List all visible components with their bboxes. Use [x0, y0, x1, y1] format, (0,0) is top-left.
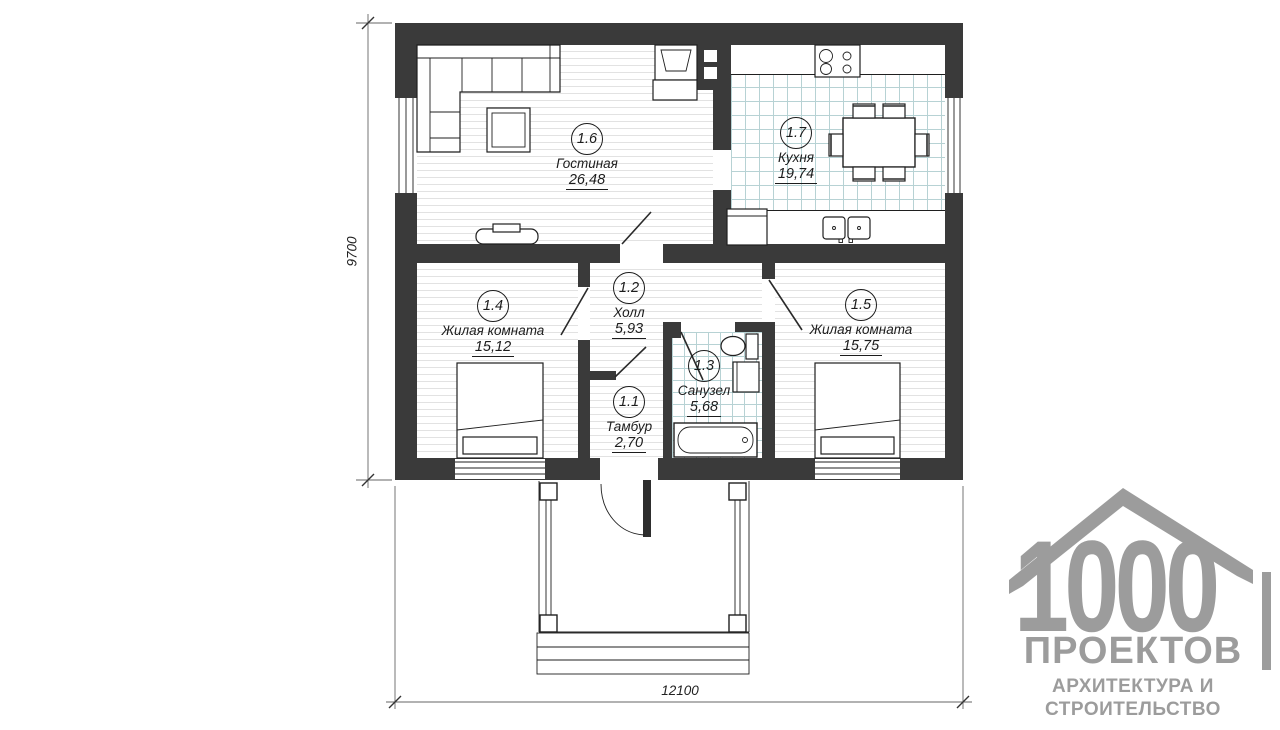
room-label-bedroom1: 1.4 Жилая комната 15,12 [423, 290, 563, 357]
floor-plan-sheet: 1.6 Гостиная 26,48 1.7 Кухня 19,74 1.4 Ж… [0, 0, 1280, 730]
room-area-bedroom1: 15,12 [472, 339, 514, 357]
room-number-living: 1.6 [571, 123, 603, 155]
room-label-bedroom2: 1.5 Жилая комната 15,75 [791, 289, 931, 356]
room-number-bathroom: 1.3 [688, 350, 720, 382]
room-number-kitchen: 1.7 [780, 117, 812, 149]
room-name-bedroom1: Жилая комната [423, 323, 563, 338]
room-area-living: 26,48 [566, 172, 608, 190]
room-label-hall: 1.2 Холл 5,93 [559, 272, 699, 339]
window-left-gap [395, 98, 417, 193]
dimension-height-label: 9700 [345, 222, 360, 282]
room-number-hall: 1.2 [613, 272, 645, 304]
window-bottom-right-gap [815, 459, 900, 479]
doorway-living-hall [620, 244, 663, 263]
doorway-entrance [600, 458, 658, 480]
room-name-vestibule: Тамбур [559, 419, 699, 434]
wall-exterior-left-upper [395, 45, 417, 98]
room-number-bedroom1: 1.4 [477, 290, 509, 322]
room-name-living: Гостиная [517, 156, 657, 171]
room-area-bedroom2: 15,75 [840, 338, 882, 356]
room-label-kitchen: 1.7 Кухня 19,74 [726, 117, 866, 184]
chimney-block [695, 43, 731, 90]
room-area-hall: 5,93 [612, 321, 646, 339]
logo-name: ПРОЕКТОВ [1009, 632, 1257, 670]
room-label-vestibule: 1.1 Тамбур 2,70 [559, 386, 699, 453]
logo-tagline-1: АРХИТЕКТУРА И [1009, 676, 1257, 697]
room-number-bedroom2: 1.5 [845, 289, 877, 321]
window-bottom-left-gap [455, 459, 545, 479]
room-label-living: 1.6 Гостиная 26,48 [517, 123, 657, 190]
wall-exterior-left-lower [395, 193, 417, 480]
wall-bedroom2-stub [762, 263, 775, 279]
room-name-kitchen: Кухня [726, 150, 866, 165]
window-right-gap [945, 98, 963, 193]
room-name-hall: Холл [559, 305, 699, 320]
wall-exterior-right-lower [945, 193, 963, 480]
logo-tagline-2: СТРОИТЕЛЬСТВО [1009, 699, 1257, 720]
wall-middle-horizontal [417, 244, 963, 263]
wall-vestibule-stub [590, 371, 616, 380]
room-number-vestibule: 1.1 [613, 386, 645, 418]
logo-accent-bar [1262, 572, 1271, 670]
dimension-width-label: 12100 [640, 683, 720, 698]
room-name-bedroom2: Жилая комната [791, 322, 931, 337]
wall-exterior-top [395, 23, 963, 45]
room-area-vestibule: 2,70 [612, 435, 646, 453]
room-area-kitchen: 19,74 [775, 166, 817, 184]
wall-exterior-right-upper [945, 45, 963, 98]
